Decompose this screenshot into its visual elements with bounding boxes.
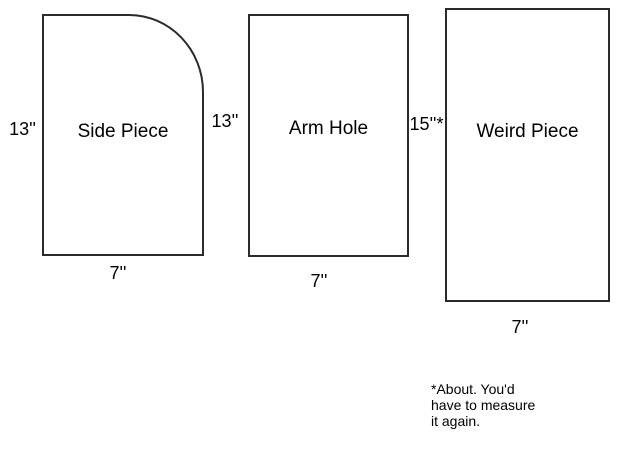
side-piece-width-dimension: 7''	[105, 264, 131, 282]
weird-piece-height-dimension: 15''*	[408, 115, 445, 133]
side-piece-shape: Side Piece	[42, 14, 204, 256]
side-piece-height-dimension: 13''	[8, 120, 36, 138]
arm-hole-width-dimension: 7''	[306, 272, 332, 290]
footnote-text: *About. You'd have to measure it again.	[431, 381, 551, 429]
pattern-diagram: Side Piece 13'' 7'' Arm Hole 13'' 7'' We…	[0, 0, 620, 465]
weird-piece-label: Weird Piece	[447, 121, 608, 143]
weird-piece-shape: Weird Piece	[445, 8, 610, 302]
arm-hole-label: Arm Hole	[250, 118, 407, 140]
arm-hole-height-dimension: 13''	[208, 112, 242, 130]
weird-piece-width-dimension: 7''	[507, 318, 533, 336]
side-piece-label: Side Piece	[44, 121, 202, 143]
arm-hole-shape: Arm Hole	[248, 14, 409, 257]
